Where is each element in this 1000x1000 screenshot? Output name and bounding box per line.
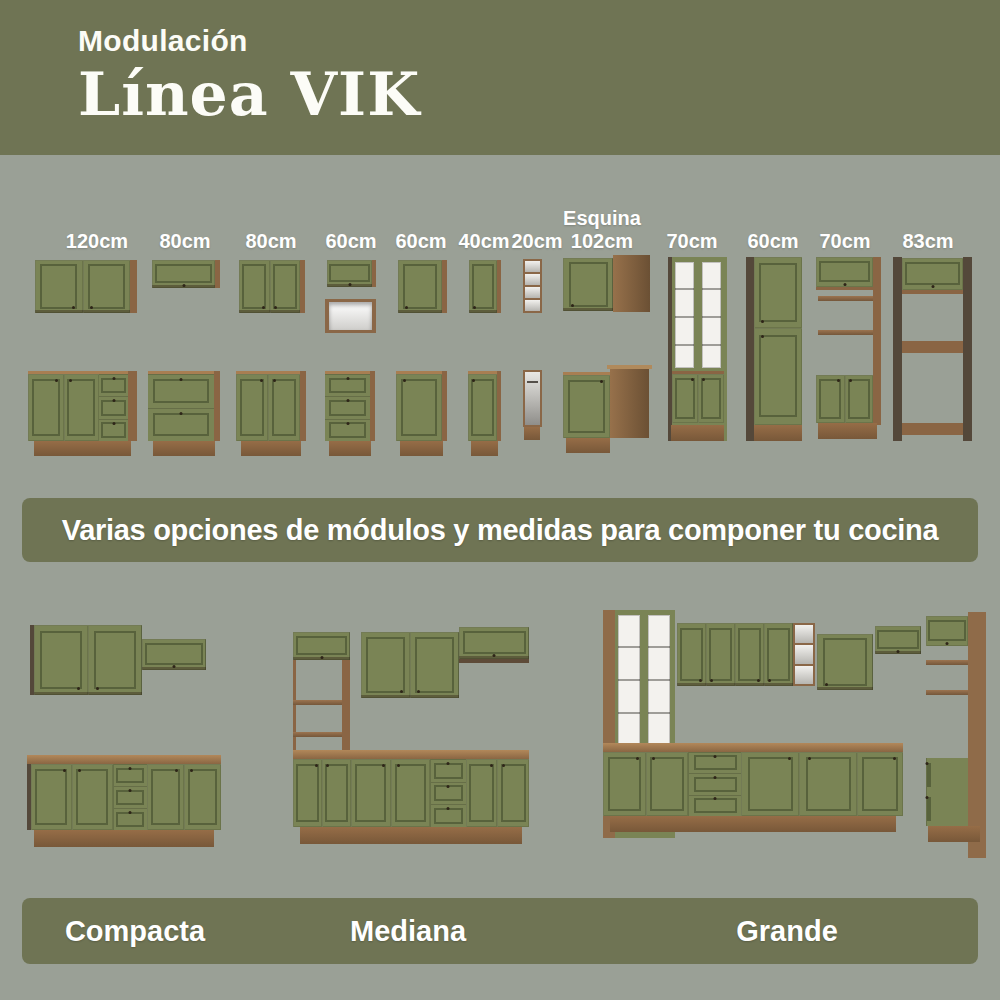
- drawer: [325, 419, 370, 441]
- door: [28, 374, 64, 441]
- drawer: [99, 396, 128, 418]
- open-shelf-unit: [523, 259, 542, 313]
- wall-cabinet-2door-art: [239, 260, 305, 313]
- module-size-label: 60cm: [747, 230, 798, 253]
- countertop: [27, 755, 221, 764]
- side-panel: [293, 660, 296, 757]
- cabinet-doors: [34, 625, 142, 695]
- plinth: [671, 425, 724, 441]
- side-panel: [130, 260, 137, 313]
- door: [361, 632, 410, 698]
- door: [268, 374, 300, 441]
- door: [857, 752, 903, 816]
- drawer: [114, 786, 147, 808]
- module-size-label: 40cm: [458, 230, 509, 253]
- side-panel: [300, 260, 305, 313]
- side-panel: [746, 257, 754, 441]
- plinth: [153, 441, 215, 456]
- cabinet-doors: [902, 258, 963, 290]
- base-doors: [816, 375, 873, 423]
- niche-interior: [329, 302, 372, 330]
- door: [64, 374, 100, 441]
- side-panel: [497, 260, 501, 313]
- door: [764, 623, 793, 686]
- oven-shelf-band: [902, 423, 963, 435]
- wall-cabinet-1door-art: [398, 260, 447, 313]
- shelf: [926, 660, 968, 665]
- drawer: [431, 782, 465, 805]
- drawer: [431, 804, 465, 827]
- wall-cabinet-flip-art: [875, 626, 921, 654]
- cabinet-doors: [293, 632, 350, 660]
- glass-door: [699, 259, 724, 371]
- door: [83, 260, 131, 313]
- corner-base-folded-panel: [610, 369, 649, 438]
- shelf-cell: [795, 645, 813, 663]
- wall-cabinet-2door-art: [35, 260, 137, 313]
- door: [563, 375, 610, 438]
- drawer: [431, 759, 465, 782]
- drawer-stack: [148, 374, 214, 441]
- door: [646, 752, 689, 816]
- cabinet-doors: [875, 626, 921, 654]
- plinth: [329, 441, 371, 456]
- module-size-label: 80cm: [159, 230, 210, 253]
- cabinet-doors: [603, 752, 903, 816]
- side-panel: [128, 371, 137, 441]
- cabinet-doors: [563, 258, 613, 311]
- plinth: [928, 826, 980, 842]
- door: [902, 258, 963, 290]
- door: [351, 759, 391, 827]
- glass-doors: [672, 259, 724, 371]
- drawer: [114, 808, 147, 830]
- tower-flip-door: [293, 632, 350, 660]
- door: [142, 639, 206, 670]
- drawer: [325, 374, 370, 396]
- side-panel: [873, 257, 881, 425]
- door: [72, 764, 113, 830]
- kitchens-section: [0, 562, 1000, 892]
- door: [563, 258, 613, 311]
- door: [459, 627, 529, 659]
- wall-cabinet-2door-art: [361, 632, 459, 698]
- drawer: [99, 374, 128, 396]
- kitchen-grande-art: [598, 598, 990, 862]
- plinth: [34, 830, 214, 847]
- cabinet-doors: [396, 374, 442, 441]
- glass-doors: [615, 612, 673, 748]
- door: [735, 623, 764, 686]
- cabinet-doors: [672, 374, 724, 423]
- cabinet-doors: [459, 627, 529, 659]
- drawer: [114, 764, 147, 786]
- door: [816, 375, 845, 423]
- shelf: [926, 690, 968, 695]
- side-panel: [442, 260, 447, 313]
- open-shelf-area: [818, 290, 873, 375]
- module-size-label: 120cm: [66, 230, 128, 253]
- door: [603, 752, 646, 816]
- cabinet-doors: [28, 374, 99, 441]
- corner-wall-return-panel: [613, 255, 650, 312]
- base-cabinet-2door-art: [236, 371, 306, 441]
- module-size-label: 60cm: [395, 230, 446, 253]
- cabinet-doors: [31, 764, 221, 830]
- cabinet-doors: [35, 260, 130, 313]
- door: [293, 632, 350, 660]
- door: [147, 764, 184, 830]
- cabinet-doors: [926, 616, 968, 646]
- drawer: [325, 396, 370, 418]
- cabinet-doors: [677, 623, 793, 686]
- tall-pantry-art: [746, 257, 802, 441]
- cabinet-doors: [398, 260, 442, 313]
- door: [845, 375, 874, 423]
- tower-open-shelves: [293, 660, 350, 757]
- cabinet-doors: [563, 375, 610, 438]
- door: [754, 257, 802, 328]
- shelf-cell: [795, 625, 813, 643]
- shelf-cell: [525, 300, 540, 311]
- drawer-stack: [926, 758, 927, 826]
- plinth: [610, 816, 896, 832]
- glass-door: [615, 612, 643, 748]
- banner-text: Varias opciones de módulos y medidas par…: [62, 514, 938, 547]
- glass-door: [672, 259, 697, 371]
- side-panel: [968, 612, 986, 858]
- drawer-stack: [325, 374, 370, 441]
- door: [469, 260, 497, 313]
- drawer-stack: [688, 752, 741, 816]
- drawer-stack: [430, 759, 465, 827]
- door: [184, 764, 221, 830]
- module-size-label: Esquina 102cm: [563, 207, 641, 253]
- door: [817, 634, 873, 690]
- module-size-label: 60cm: [325, 230, 376, 253]
- door: [396, 374, 442, 441]
- module-size-label: 20cm: [511, 230, 562, 253]
- module-size-label: 83cm: [902, 230, 953, 253]
- side-panel: [442, 371, 447, 441]
- door: [497, 759, 529, 827]
- shelf-cell: [525, 261, 540, 272]
- open-shelf-unit: [793, 623, 815, 686]
- flip-door-cabinet: [902, 258, 963, 290]
- base-cabinet-2door-3drawer-art: [28, 371, 137, 441]
- plinth: [471, 441, 498, 456]
- corner-wall-door: [817, 634, 873, 690]
- base-cabinet-1door-art: [396, 371, 447, 441]
- wall-cabinet-flip-art: [459, 627, 529, 659]
- plinth: [524, 427, 540, 440]
- cabinet-doors: [926, 758, 968, 826]
- middle-banner: Varias opciones de módulos y medidas par…: [22, 498, 978, 562]
- base-run-art: [27, 764, 221, 830]
- door: [466, 759, 498, 827]
- door: [34, 625, 88, 695]
- kitchen-compacta-art: [25, 612, 237, 857]
- door: [35, 260, 83, 313]
- header: Modulación Línea VIK: [0, 0, 1000, 155]
- countertop: [603, 743, 903, 752]
- base-doors: [926, 758, 968, 826]
- door: [706, 623, 735, 686]
- kitchen-label-grande: Grande: [736, 915, 838, 948]
- cabinet-doors: [239, 260, 300, 313]
- right-tower-art: [926, 612, 986, 858]
- shelf-cell: [795, 666, 813, 684]
- side-panel: [214, 371, 220, 441]
- plinth: [754, 425, 802, 441]
- shelf: [293, 700, 342, 705]
- door: [152, 260, 215, 288]
- corner-base-cabinet-art: [563, 372, 610, 438]
- drawer: [99, 419, 128, 441]
- infographic-page: Modulación Línea VIK 120cm 80cm 80cm 60c…: [0, 0, 1000, 1000]
- tall-open-tower-art: [816, 257, 881, 441]
- plinth: [300, 827, 522, 844]
- module-size-label: 80cm: [245, 230, 296, 253]
- shelf: [818, 330, 873, 335]
- door: [293, 759, 322, 827]
- cabinet-doors: [816, 375, 873, 423]
- wall-cabinet-1door-art: [469, 260, 501, 313]
- door: [327, 260, 372, 287]
- side-panel: [342, 660, 350, 757]
- shelf-cell: [525, 287, 540, 298]
- door: [88, 625, 142, 695]
- wall-cabinet-flip-art: [152, 260, 220, 288]
- door: [236, 374, 268, 441]
- countertop: [293, 750, 529, 759]
- kitchen-label-compacta: Compacta: [65, 915, 205, 948]
- cabinet-doors: [754, 257, 802, 425]
- drawer-stack: [113, 764, 147, 830]
- base-run-art: [293, 759, 529, 827]
- drawer-stack: [99, 374, 128, 441]
- shelf: [293, 732, 342, 737]
- door: [398, 260, 442, 313]
- door: [816, 257, 873, 287]
- flip-door-cabinet: [926, 616, 968, 646]
- shelf-cell: [525, 274, 540, 285]
- modules-section: 120cm 80cm 80cm 60cm 60cm 40cm 20cm Esqu…: [0, 155, 1000, 490]
- side-panel: [497, 371, 501, 441]
- drawer: [689, 752, 741, 773]
- cabinet-doors: [236, 374, 300, 441]
- door: [698, 374, 724, 423]
- plinth: [241, 441, 301, 456]
- header-kicker: Modulación: [78, 24, 1000, 58]
- flip-door-cabinet: [816, 257, 873, 287]
- side-panel: [300, 371, 306, 441]
- wall-cabinet-flip-art: [327, 260, 376, 287]
- door: [672, 374, 698, 423]
- page-title: Línea VIK: [78, 59, 1000, 129]
- kitchen-label-mediana: Mediana: [350, 915, 466, 948]
- cabinet-doors: [816, 257, 873, 287]
- drawer: [689, 795, 741, 816]
- corner-wall-cabinet-art: [563, 258, 613, 311]
- door: [875, 626, 921, 654]
- door: [31, 764, 72, 830]
- oven-shelf-band: [902, 341, 963, 353]
- door: [468, 374, 497, 441]
- plinth: [818, 423, 877, 439]
- cabinet-doors: [152, 260, 215, 288]
- kitchen-mediana-art: [293, 607, 533, 859]
- base-cabinet-1door-art: [468, 371, 501, 441]
- door: [926, 616, 968, 646]
- cabinet-doors: [817, 634, 873, 690]
- open-shelf-area: [926, 646, 968, 758]
- door: [322, 759, 351, 827]
- cabinet-doors: [361, 632, 459, 698]
- drawer: [148, 408, 214, 442]
- tall-oven-tower-art: [893, 257, 972, 441]
- module-size-label: 70cm: [666, 230, 717, 253]
- shelf-edge: [902, 290, 963, 294]
- wall-cabinet-flip-art: [142, 639, 206, 670]
- base-cabinet-2drawer-art: [148, 371, 220, 441]
- door: [677, 623, 706, 686]
- plinth: [400, 441, 443, 456]
- side-panel: [372, 260, 376, 287]
- cabinet-doors: [327, 260, 372, 287]
- glass-door: [645, 612, 673, 748]
- open-niche: [325, 299, 376, 333]
- tall-glass-display-art: [668, 257, 727, 441]
- side-panel: [963, 257, 972, 441]
- cabinet-doors: [468, 374, 497, 441]
- wall-cabinet-2door-art: [30, 625, 142, 695]
- drawer: [689, 773, 741, 794]
- door: [391, 759, 431, 827]
- side-panel: [370, 371, 375, 441]
- base-cabinet-3drawer-art: [325, 371, 375, 441]
- door: [270, 260, 301, 313]
- door: [741, 752, 799, 816]
- door: [799, 752, 857, 816]
- door: [754, 328, 802, 425]
- wall-cabinet-run: [677, 623, 793, 686]
- base-run-art: [603, 752, 903, 816]
- towel-rail-unit: [523, 370, 542, 427]
- plinth: [34, 441, 131, 456]
- door: [239, 260, 270, 313]
- drawer: [148, 374, 214, 408]
- side-panel: [215, 260, 220, 288]
- side-panel: [893, 257, 902, 441]
- towel-unit-interior: [525, 372, 540, 425]
- shelf-edge: [459, 659, 529, 663]
- cabinet-doors: [469, 260, 497, 313]
- cabinet-doors: [293, 759, 529, 827]
- cabinet-doors: [142, 639, 206, 670]
- door: [410, 632, 459, 698]
- module-size-label: 70cm: [819, 230, 870, 253]
- bottom-banner: Compacta Mediana Grande: [22, 898, 978, 964]
- shelf: [818, 296, 873, 301]
- plinth: [566, 438, 610, 453]
